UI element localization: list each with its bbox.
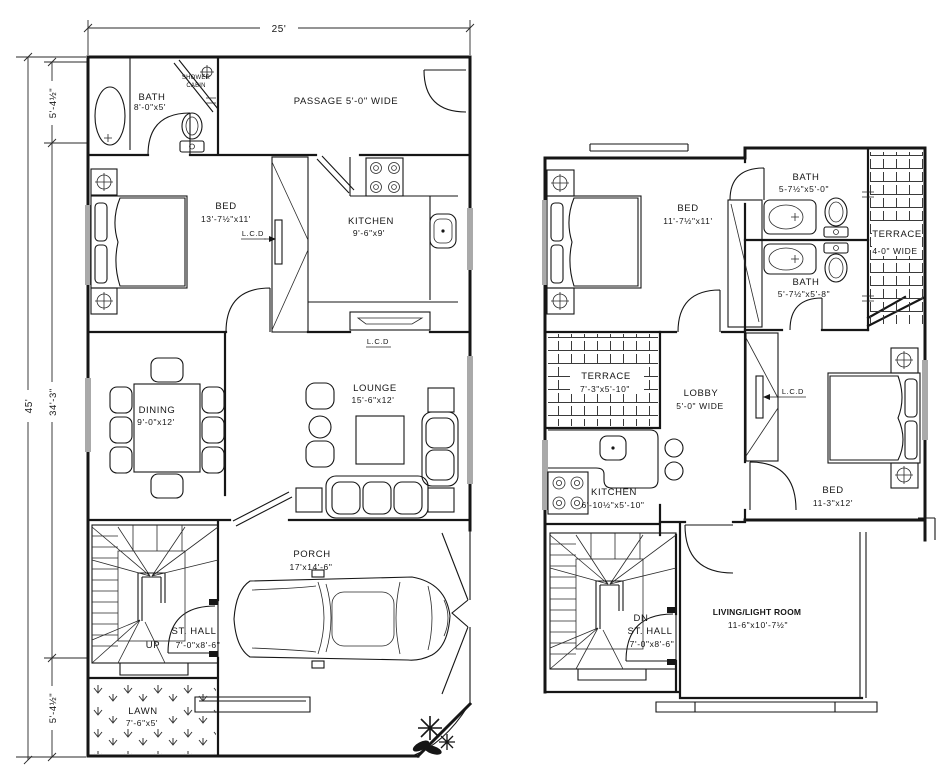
- floor-plan-canvas: 25' 45' 5'-4½" 34'-3" 5'-4½": [0, 0, 948, 774]
- room-size-st-hall: 7'-0"x8'-6": [176, 640, 221, 650]
- room-label-bed-rear: BED: [822, 485, 843, 496]
- room-size-bath-bottom: 5'-7½"x5'-8": [778, 289, 830, 299]
- room-label-lobby: LOBBY: [684, 388, 719, 399]
- ground-floor-plan: BATH 8'-0"x5' SHOWER CABIN PASSAGE 5'-0"…: [85, 57, 474, 757]
- first-lcd-panel: [756, 376, 763, 418]
- dim-left-top: 5'-4½": [48, 88, 59, 118]
- dim-left-total-group: 45': [21, 390, 35, 422]
- room-label-lounge: LOUNGE: [353, 383, 397, 394]
- room-size-bath-top: 5-7½"x5'-0": [779, 184, 829, 194]
- room-size-bed-front: 11'-7½"x11': [663, 216, 712, 226]
- room-label-st-hall-first: ST. HALL: [628, 626, 673, 637]
- room-label-shower-1: SHOWER: [182, 75, 211, 81]
- room-label-st-hall: ST. HALL: [172, 626, 217, 637]
- room-label-bath-top: BATH: [792, 172, 819, 183]
- dim-left-total: 45': [24, 399, 35, 414]
- room-size-st-hall-first: 7'-0"x8'-6": [630, 639, 675, 649]
- room-label-terrace-side: TERRACE: [872, 229, 922, 240]
- room-label-kitchen-first: KITCHEN: [591, 487, 637, 498]
- room-label-passage: PASSAGE 5'-0" WIDE: [294, 96, 399, 107]
- label-lcd-bed: L.C.D: [242, 229, 264, 238]
- dim-top-width: 25': [272, 24, 287, 35]
- room-size-bed-rear: 11-3"x12': [813, 498, 853, 508]
- label-dn: DN: [634, 613, 649, 624]
- room-label-bed-front: BED: [677, 203, 698, 214]
- room-size-lobby: 5'-0" WIDE: [676, 401, 723, 411]
- ground-kitchen-fixtures: [308, 157, 458, 330]
- dining-furniture: [110, 358, 224, 498]
- room-label-dining: DINING: [139, 405, 176, 416]
- room-size-living: 11-6"x10'-7½": [728, 620, 788, 630]
- dim-left-middle-group: 34'-3": [45, 382, 59, 422]
- room-size-porch: 17'x14'-6": [290, 562, 333, 572]
- room-size-kitchen-first: 6'-10½"x5'-10": [581, 500, 644, 510]
- room-label-kitchen: KITCHEN: [348, 216, 394, 227]
- room-label-living: LIVING/LIGHT ROOM: [713, 607, 801, 617]
- dim-left-top-group: 5'-4½": [45, 81, 59, 125]
- room-label-bed: BED: [215, 201, 236, 212]
- dim-left-bottom-group: 5'-4½": [45, 686, 59, 730]
- floor-plan-sheet: 25' 45' 5'-4½" 34'-3" 5'-4½": [0, 0, 948, 774]
- dim-left-bottom: 5'-4½": [48, 693, 59, 723]
- label-lcd-lobby: L.C.D: [782, 387, 804, 396]
- room-size-bath: 8'-0"x5': [134, 102, 166, 112]
- first-bed-rear-furniture: [828, 348, 920, 488]
- room-size-lounge: 15'-6"x12': [352, 395, 395, 405]
- room-size-dining: 9'-0"x12': [137, 417, 175, 427]
- ground-bed-furniture: [91, 157, 308, 332]
- room-label-shower-2: CABIN: [186, 83, 205, 89]
- room-size-lawn: 7'-6"x5': [126, 718, 158, 728]
- room-size-kitchen: 9'-6"x9': [353, 228, 385, 238]
- room-label-bath-bottom: BATH: [792, 277, 819, 288]
- room-size-bed: 13'-7½"x11': [201, 214, 251, 224]
- ground-labels: BATH 8'-0"x5' SHOWER CABIN PASSAGE 5'-0"…: [118, 75, 398, 728]
- room-label-terrace-rear: TERRACE: [581, 371, 631, 382]
- car: [234, 570, 450, 668]
- room-label-porch: PORCH: [293, 549, 330, 560]
- label-lcd-lounge: L.C.D: [367, 337, 389, 346]
- room-label-lawn: LAWN: [128, 706, 158, 717]
- first-floor-plan: BED 11'-7½"x11' BATH 5-7½"x5'-0" TERRACE…: [542, 144, 936, 712]
- ground-lcd-panel: [275, 220, 282, 264]
- label-up: UP: [146, 640, 160, 651]
- room-size-terrace-side: 4-0" WIDE: [872, 246, 917, 256]
- porch-gate: [442, 533, 468, 694]
- dim-left-middle: 34'-3": [48, 388, 59, 416]
- room-size-terrace-rear: 7'-3"x5'-10": [580, 384, 630, 394]
